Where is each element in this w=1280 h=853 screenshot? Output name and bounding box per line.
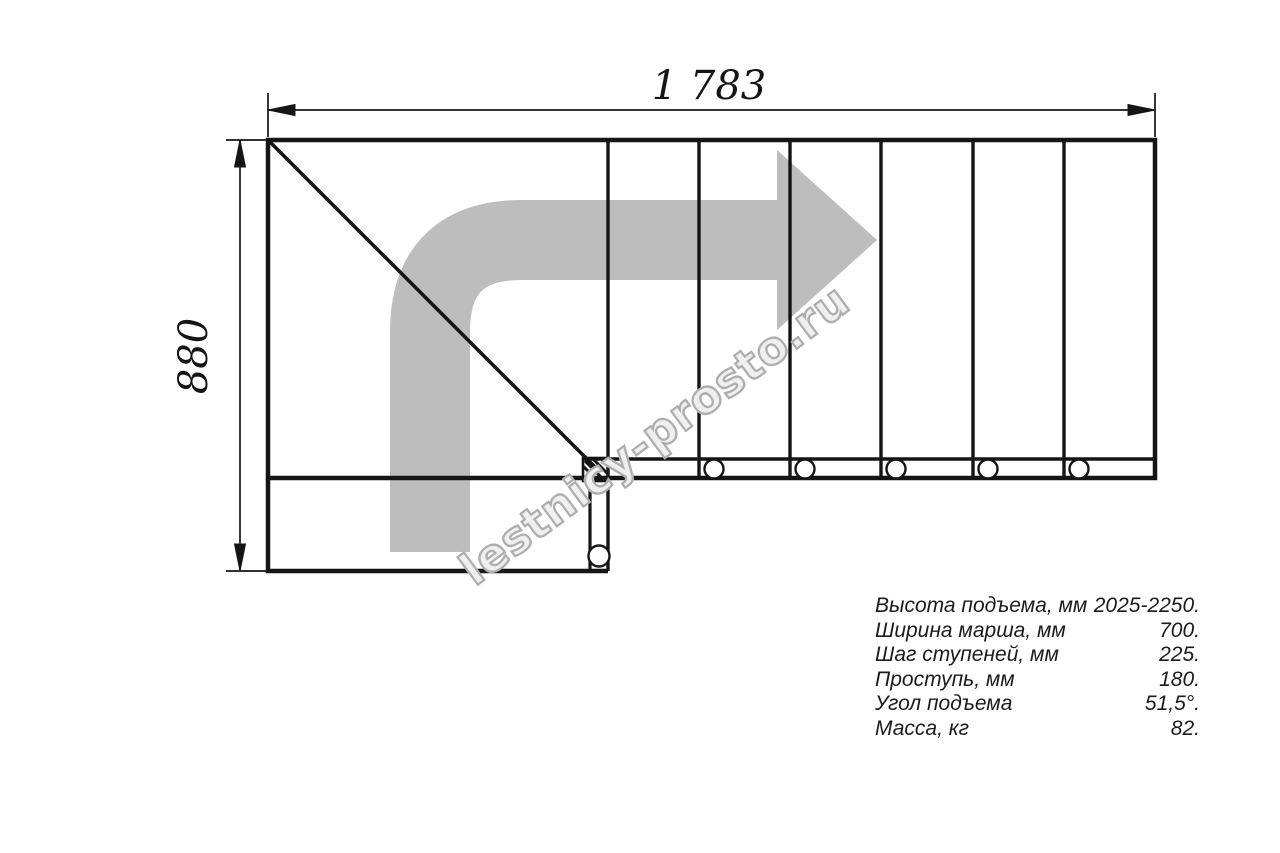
- spec-row-mass: Масса, кг 82.: [875, 717, 1200, 742]
- spec-value: 225.: [1159, 643, 1200, 668]
- dim-width-arrow-left: [268, 105, 295, 116]
- specs-table: Высота подъема, мм 2025-2250. Ширина мар…: [875, 594, 1200, 742]
- dim-height-arrow-bottom: [235, 544, 246, 571]
- tread-fastener-circles: [589, 460, 1089, 567]
- spec-label: Проступь, мм: [875, 668, 1015, 693]
- fastener-circle-1: [705, 460, 724, 479]
- direction-arrow: [430, 150, 877, 552]
- spec-value: 700.: [1159, 619, 1200, 644]
- dim-height-arrow-top: [235, 140, 246, 167]
- spec-value: 2025-2250.: [1094, 594, 1200, 619]
- spec-label: Ширина марша, мм: [875, 619, 1066, 644]
- dim-width-arrow-right: [1128, 105, 1155, 116]
- spec-value: 51,5°.: [1145, 692, 1200, 717]
- spec-row-tread: Проступь, мм 180.: [875, 668, 1200, 693]
- fastener-circle-5: [1070, 460, 1089, 479]
- spec-value: 180.: [1159, 668, 1200, 693]
- fastener-circle-3: [887, 460, 906, 479]
- spec-label: Угол подъема: [875, 692, 1012, 717]
- stair-drawing-canvas: 1 783 880 lestnicy-prosto.ru Высота подъ…: [0, 0, 1280, 853]
- dimensions-group: [226, 93, 1155, 571]
- direction-arrow-head: [777, 150, 877, 330]
- fastener-circle-2: [796, 460, 815, 479]
- dim-height-label: 880: [171, 318, 217, 394]
- spec-value: 82.: [1171, 717, 1200, 742]
- spec-row-angle: Угол подъема 51,5°.: [875, 692, 1200, 717]
- spec-label: Шаг ступеней, мм: [875, 643, 1059, 668]
- fastener-circle-extension: [589, 546, 610, 567]
- spec-row-step-pitch: Шаг ступеней, мм 225.: [875, 643, 1200, 668]
- spec-row-flight-width: Ширина марша, мм 700.: [875, 619, 1200, 644]
- spec-label: Масса, кг: [875, 717, 969, 742]
- spec-row-height: Высота подъема, мм 2025-2250.: [875, 594, 1200, 619]
- spec-label: Высота подъема, мм: [875, 594, 1087, 619]
- direction-arrow-shaft: [430, 240, 778, 552]
- dim-width-label: 1 783: [652, 63, 767, 109]
- fastener-circle-4: [979, 460, 998, 479]
